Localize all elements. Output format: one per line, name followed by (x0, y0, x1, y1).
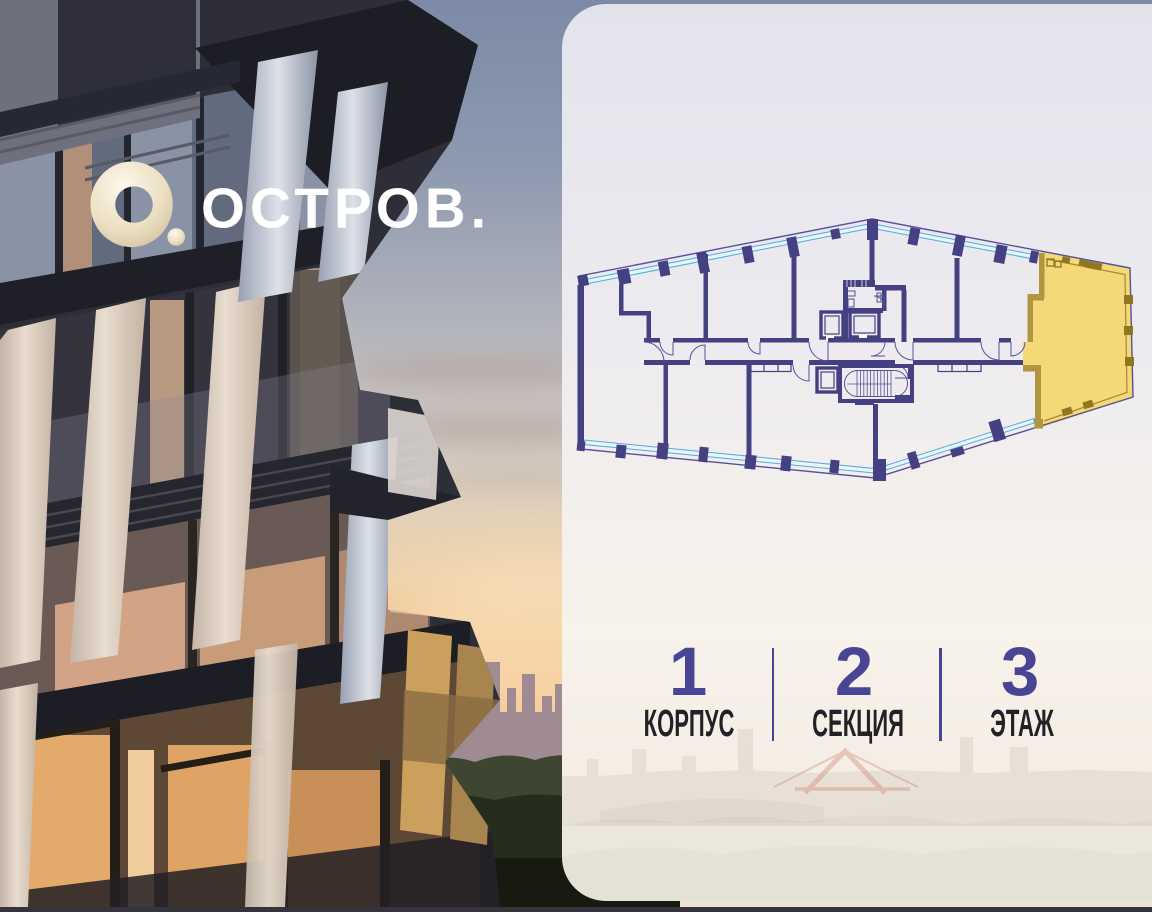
svg-text:ОСТРОВ.: ОСТРОВ. (201, 177, 491, 240)
